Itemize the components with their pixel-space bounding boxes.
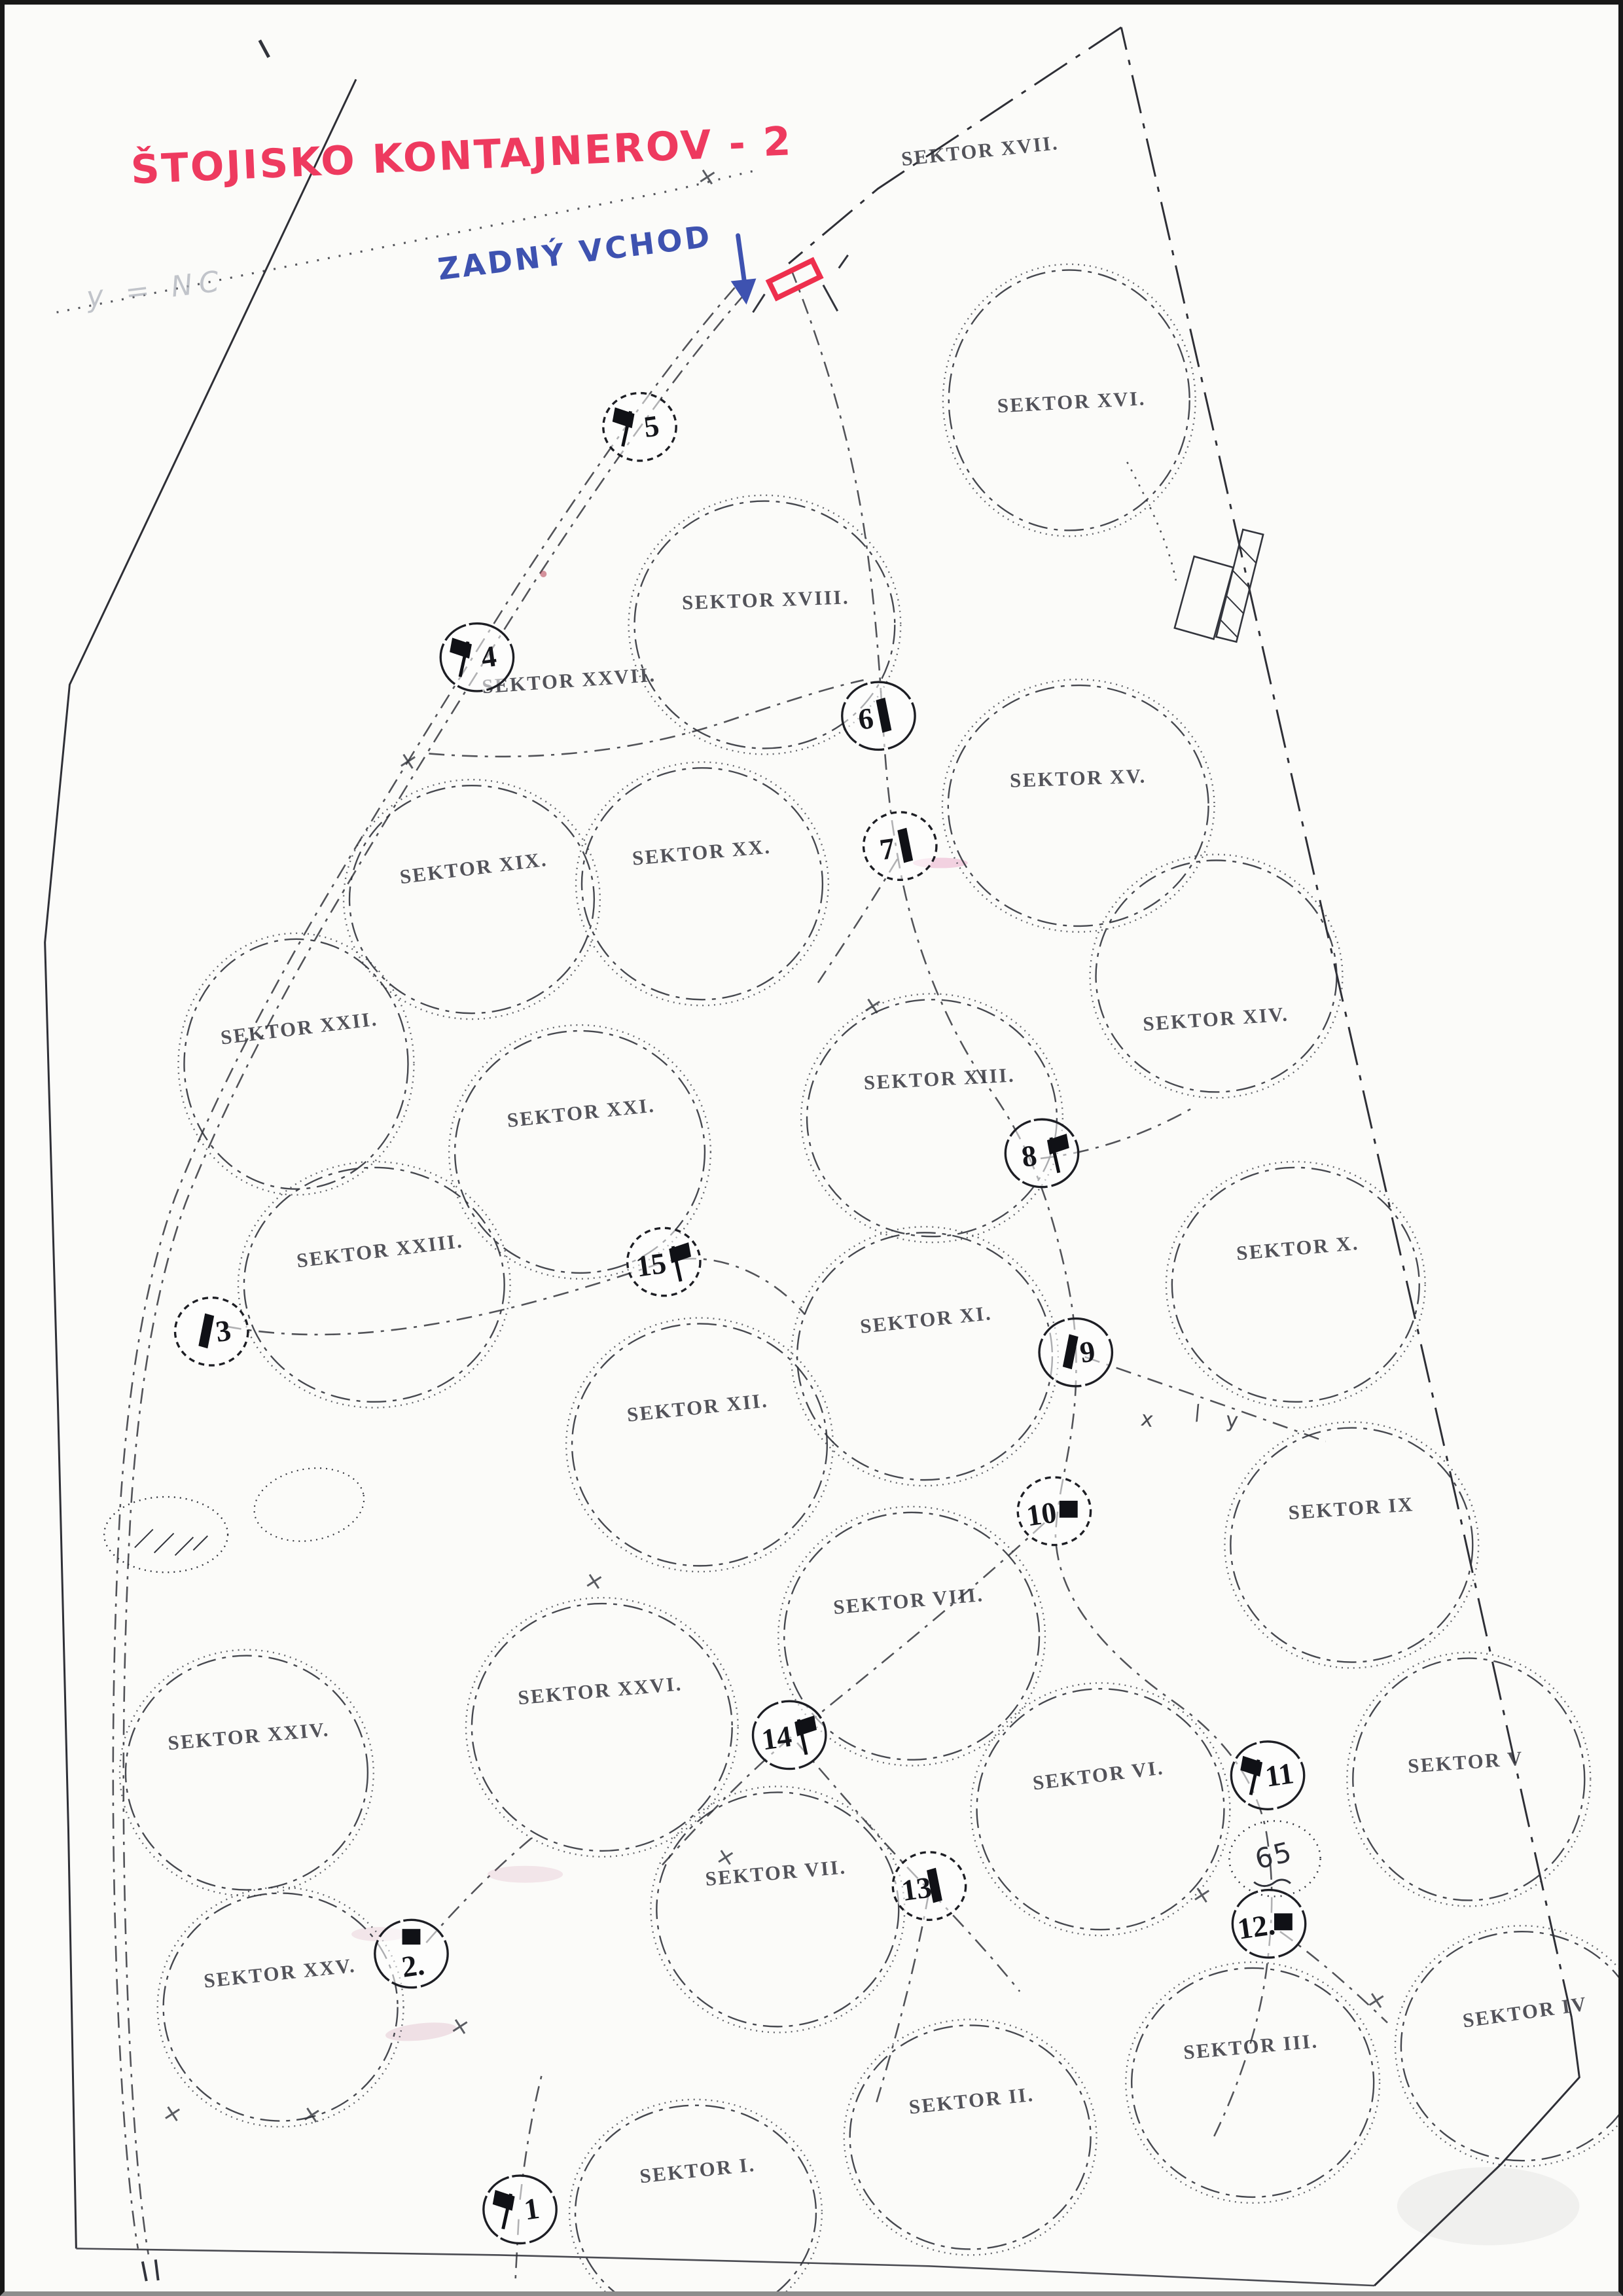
sector-iv: SEKTOR IV [1395, 1926, 1618, 2166]
sector-xxiii: SEKTOR XXIII. [238, 1162, 510, 1408]
sector-label-xvi: SEKTOR XVI. [997, 387, 1147, 418]
field-note: / [1191, 1399, 1204, 1425]
container-marker-1: 1 [484, 2176, 556, 2243]
sector-xvii: SEKTOR XVII. [901, 132, 1060, 170]
marker-number: 2. [399, 1948, 426, 1984]
survey-cross [587, 1575, 601, 1588]
sector-label-xviii: SEKTOR XVIII. [681, 586, 849, 614]
extras-layer: x/y [166, 170, 1383, 2122]
cemetery-sector-map: SEKTOR XVII.SEKTOR XVI.SEKTOR XVIII.SEKT… [5, 5, 1618, 2291]
sector-xiv: SEKTOR XIV. [1090, 855, 1343, 1098]
sector-label-xix: SEKTOR XIX. [399, 848, 549, 888]
sector-label-vi: SEKTOR VI. [1031, 1756, 1165, 1794]
pencil-note: y = NC [83, 264, 227, 315]
square-icon [402, 1929, 421, 1945]
container-marker-3: 3 [175, 1298, 248, 1365]
sector-xx: SEKTOR XX. [576, 762, 829, 1005]
container-marker-8: 8 [1005, 1119, 1078, 1187]
sector-xxv: SEKTOR XXV. [158, 1888, 404, 2127]
sector-xi: SEKTOR XI. [791, 1227, 1058, 1486]
marker-number: 10 [1024, 1496, 1058, 1533]
sector-label-vii: SEKTOR VII. [704, 1856, 847, 1890]
sector-label-viii: SEKTOR VIII. [832, 1583, 985, 1619]
sector-label-xxv: SEKTOR XXV. [203, 1954, 357, 1992]
entrance-down-arrow-icon [731, 236, 757, 304]
sector-xxiv: SEKTOR XXIV. [120, 1650, 374, 1896]
note-65-text: 65 [1252, 1835, 1296, 1875]
field-note: x [1139, 1406, 1155, 1432]
sector-label-x: SEKTOR X. [1236, 1232, 1360, 1265]
annotations: ŠTOJISKO KONTAJNEROV - 2 ZADNÝ VCHOD y =… [83, 118, 1320, 1896]
sector-label-xiv: SEKTOR XIV. [1142, 1003, 1289, 1035]
survey-cross [305, 2108, 319, 2122]
sector-label-ii: SEKTOR II. [908, 2083, 1035, 2119]
sector-label-iv: SEKTOR IV [1461, 1992, 1589, 2032]
sectors-layer: SEKTOR XVII.SEKTOR XVI.SEKTOR XVIII.SEKT… [120, 132, 1618, 2291]
sector-v: SEKTOR V [1347, 1653, 1590, 1907]
container-marker-6: 6 [842, 682, 915, 749]
square-icon [1274, 1913, 1293, 1930]
sector-label-xx: SEKTOR XX. [632, 835, 772, 869]
sector-xiii: SEKTOR XIII. [801, 994, 1063, 1242]
sector-label-xiii: SEKTOR XIII. [863, 1064, 1016, 1094]
field-note: y [1225, 1407, 1240, 1433]
survey-cross [700, 170, 714, 184]
scan-smudges [351, 571, 1579, 2245]
sector-label-xi: SEKTOR XI. [859, 1302, 993, 1338]
sector-label-xxiii: SEKTOR XXIII. [295, 1230, 464, 1272]
sector-xii: SEKTOR XII. [566, 1318, 833, 1572]
sector-xv: SEKTOR XV. [942, 679, 1215, 932]
marker-number: 15 [634, 1246, 668, 1283]
service-building [1175, 529, 1263, 642]
map-boundary [45, 27, 1580, 2286]
marker-number: 13 [899, 1870, 933, 1907]
sector-vi: SEKTOR VI. [971, 1683, 1230, 1935]
container-marker-15: 15 [628, 1228, 700, 1295]
sector-label-xxvi: SEKTOR XXVI. [517, 1672, 683, 1709]
sector-label-xxii: SEKTOR XXII. [219, 1007, 379, 1049]
entrance-label: ZADNÝ VCHOD [436, 217, 714, 287]
map-title: ŠTOJISKO KONTAJNEROV - 2 [130, 118, 793, 193]
survey-cross [401, 755, 415, 768]
sector-label-iii: SEKTOR III. [1183, 2030, 1319, 2064]
sector-x: SEKTOR X. [1166, 1162, 1425, 1408]
marker-number: 14 [760, 1719, 794, 1757]
survey-cross [1195, 1888, 1209, 1902]
sector-label-xvii: SEKTOR XVII. [901, 132, 1060, 170]
container-marker-10: 10 [1018, 1477, 1090, 1545]
container-marker-9: 9 [1039, 1319, 1112, 1386]
square-icon [1060, 1501, 1078, 1518]
scanned-map-page: SEKTOR XVII.SEKTOR XVI.SEKTOR XVIII.SEKT… [0, 0, 1623, 2296]
sector-label-ix: SEKTOR IX [1288, 1493, 1415, 1524]
sector-iii: SEKTOR III. [1126, 1962, 1380, 2203]
sector-label-v: SEKTOR V [1407, 1748, 1524, 1778]
sector-label-xv: SEKTOR XV. [1009, 765, 1147, 792]
sector-label-xxiv: SEKTOR XXIV. [167, 1718, 330, 1754]
container-marker-14: 14 [753, 1701, 826, 1768]
sector-ii: SEKTOR II. [844, 2019, 1097, 2255]
sector-xxvi: SEKTOR XXVI. [466, 1598, 738, 1857]
sector-ix: SEKTOR IX [1224, 1422, 1478, 1668]
container-marker-11: 11 [1231, 1742, 1304, 1809]
marker-number: 12. [1236, 1907, 1277, 1945]
container-marker-5: 5 [603, 393, 676, 461]
container-marker-4: 4 [440, 624, 513, 691]
pond-area [104, 1460, 370, 1572]
sector-label-xxi: SEKTOR XXI. [506, 1094, 656, 1132]
marker-number: 11 [1263, 1756, 1296, 1793]
container-marker-13: 13 [893, 1852, 965, 1920]
survey-cross [166, 2107, 179, 2121]
survey-cross [719, 1850, 732, 1864]
container-marker-2: 2. [375, 1920, 448, 1987]
survey-cross [1369, 1994, 1383, 2007]
sector-xvi: SEKTOR XVI. [943, 264, 1196, 537]
sector-label-xii: SEKTOR XII. [626, 1390, 769, 1426]
handwritten-note-65: 65 [1229, 1821, 1320, 1896]
container-marker-12: 12. [1232, 1890, 1305, 1958]
sector-xxii: SEKTOR XXII. [178, 933, 414, 1195]
sector-label-i: SEKTOR I. [639, 2153, 757, 2187]
container-marker-7: 7 [864, 812, 936, 880]
